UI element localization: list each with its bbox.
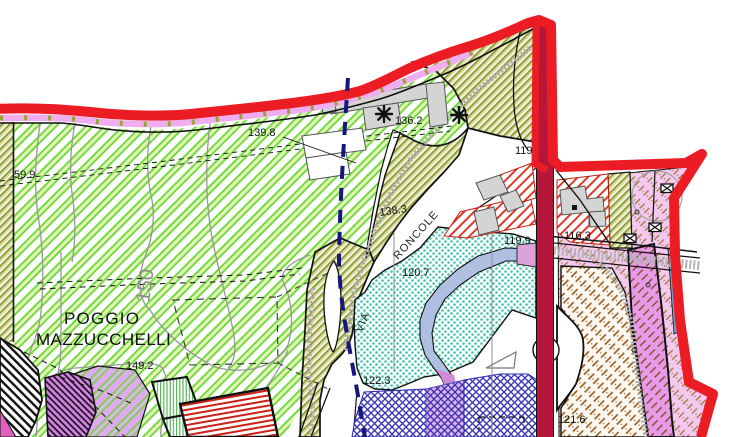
svg-text:139.8: 139.8 — [248, 127, 276, 139]
svg-text:121.6: 121.6 — [558, 414, 586, 426]
svg-text:119.9: 119.9 — [504, 235, 531, 247]
svg-text:116.3: 116.3 — [564, 230, 591, 242]
svg-text:136.2: 136.2 — [395, 115, 423, 127]
svg-text:150: 150 — [132, 268, 158, 304]
svg-text:119: 119 — [515, 145, 533, 157]
svg-text:MAZZUCCHELLI: MAZZUCCHELLI — [36, 330, 171, 349]
svg-text:149.2: 149.2 — [126, 360, 154, 372]
svg-text:120.7: 120.7 — [402, 267, 430, 279]
svg-text:122.3: 122.3 — [363, 375, 391, 387]
svg-text:POGGIO: POGGIO — [64, 309, 140, 328]
svg-text:59.9: 59.9 — [14, 169, 35, 181]
